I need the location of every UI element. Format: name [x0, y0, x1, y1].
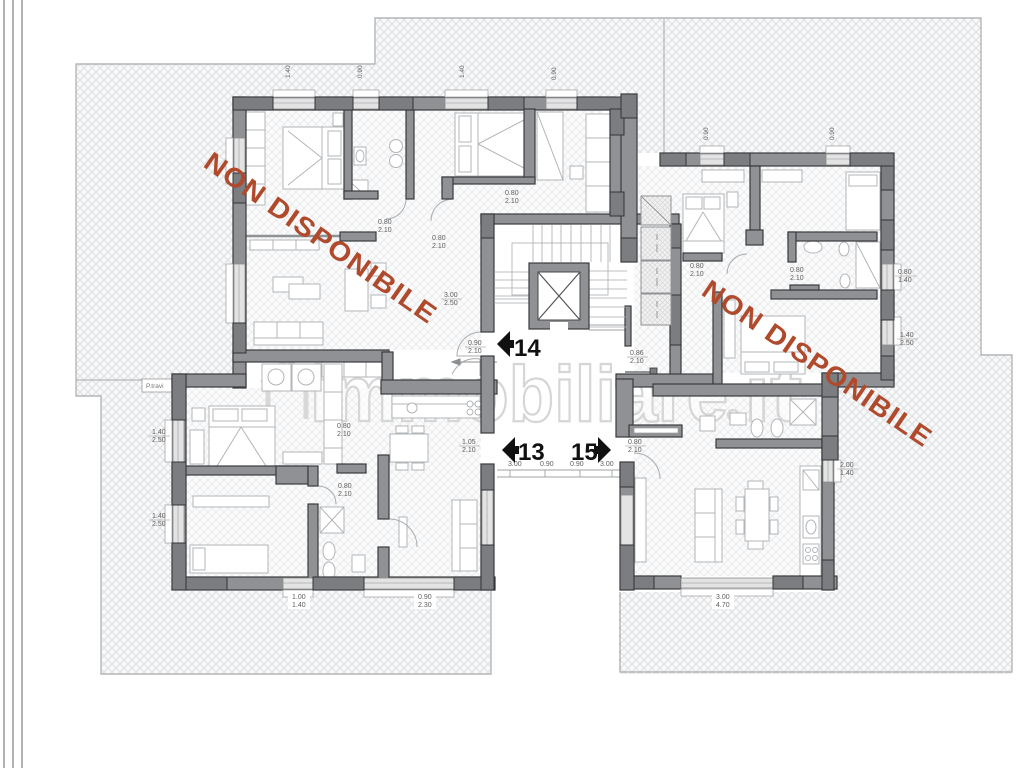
svg-text:0.80: 0.80	[378, 219, 392, 226]
svg-text:2.10: 2.10	[630, 358, 644, 365]
svg-text:0.90: 0.90	[703, 127, 710, 140]
svg-text:1.40: 1.40	[900, 332, 914, 339]
svg-text:1.40: 1.40	[152, 429, 166, 436]
svg-text:3.00: 3.00	[600, 461, 614, 468]
svg-text:2.10: 2.10	[462, 447, 476, 454]
svg-text:0.80: 0.80	[338, 483, 352, 490]
svg-text:0.90: 0.90	[551, 67, 558, 80]
svg-text:2.10: 2.10	[690, 271, 704, 278]
svg-text:2.50: 2.50	[152, 437, 166, 444]
svg-text:0.90: 0.90	[468, 340, 482, 347]
svg-text:1.40: 1.40	[898, 277, 912, 284]
svg-text:0.86: 0.86	[630, 350, 644, 357]
svg-text:2.30: 2.30	[418, 602, 432, 609]
svg-text:2.00: 2.00	[840, 462, 854, 469]
svg-text:3.00: 3.00	[444, 292, 458, 299]
svg-text:0.80: 0.80	[628, 439, 642, 446]
svg-text:2.10: 2.10	[468, 348, 482, 355]
svg-text:2.50: 2.50	[444, 300, 458, 307]
svg-text:13: 13	[518, 439, 545, 466]
svg-text:2.10: 2.10	[790, 275, 804, 282]
svg-text:0.90: 0.90	[418, 594, 432, 601]
svg-text:1.05: 1.05	[462, 439, 476, 446]
svg-text:0.80: 0.80	[790, 267, 804, 274]
svg-text:2.10: 2.10	[337, 431, 351, 438]
svg-text:P.travi: P.travi	[146, 383, 164, 390]
svg-text:15: 15	[571, 439, 598, 466]
svg-text:0.80: 0.80	[898, 269, 912, 276]
svg-text:0.80: 0.80	[690, 263, 704, 270]
svg-text:2.10: 2.10	[505, 198, 519, 205]
svg-text:4.70: 4.70	[716, 602, 730, 609]
svg-text:0.90: 0.90	[357, 65, 364, 78]
svg-text:0.80: 0.80	[432, 235, 446, 242]
svg-text:1.40: 1.40	[840, 470, 854, 477]
svg-text:0.80: 0.80	[337, 423, 351, 430]
svg-text:2.50: 2.50	[900, 340, 914, 347]
svg-text:3.00: 3.00	[716, 594, 730, 601]
svg-text:2.10: 2.10	[338, 491, 352, 498]
svg-text:1.40: 1.40	[459, 65, 466, 78]
svg-text:2.50: 2.50	[152, 521, 166, 528]
svg-text:2.10: 2.10	[432, 243, 446, 250]
svg-text:1.40: 1.40	[285, 65, 292, 78]
svg-text:2.10: 2.10	[378, 227, 392, 234]
svg-text:0.80: 0.80	[505, 190, 519, 197]
svg-text:14: 14	[514, 335, 541, 362]
svg-text:1.00: 1.00	[292, 594, 306, 601]
svg-text:2.10: 2.10	[628, 447, 642, 454]
svg-text:1.40: 1.40	[292, 602, 306, 609]
svg-text:1.40: 1.40	[152, 513, 166, 520]
svg-text:0.90: 0.90	[829, 127, 836, 140]
